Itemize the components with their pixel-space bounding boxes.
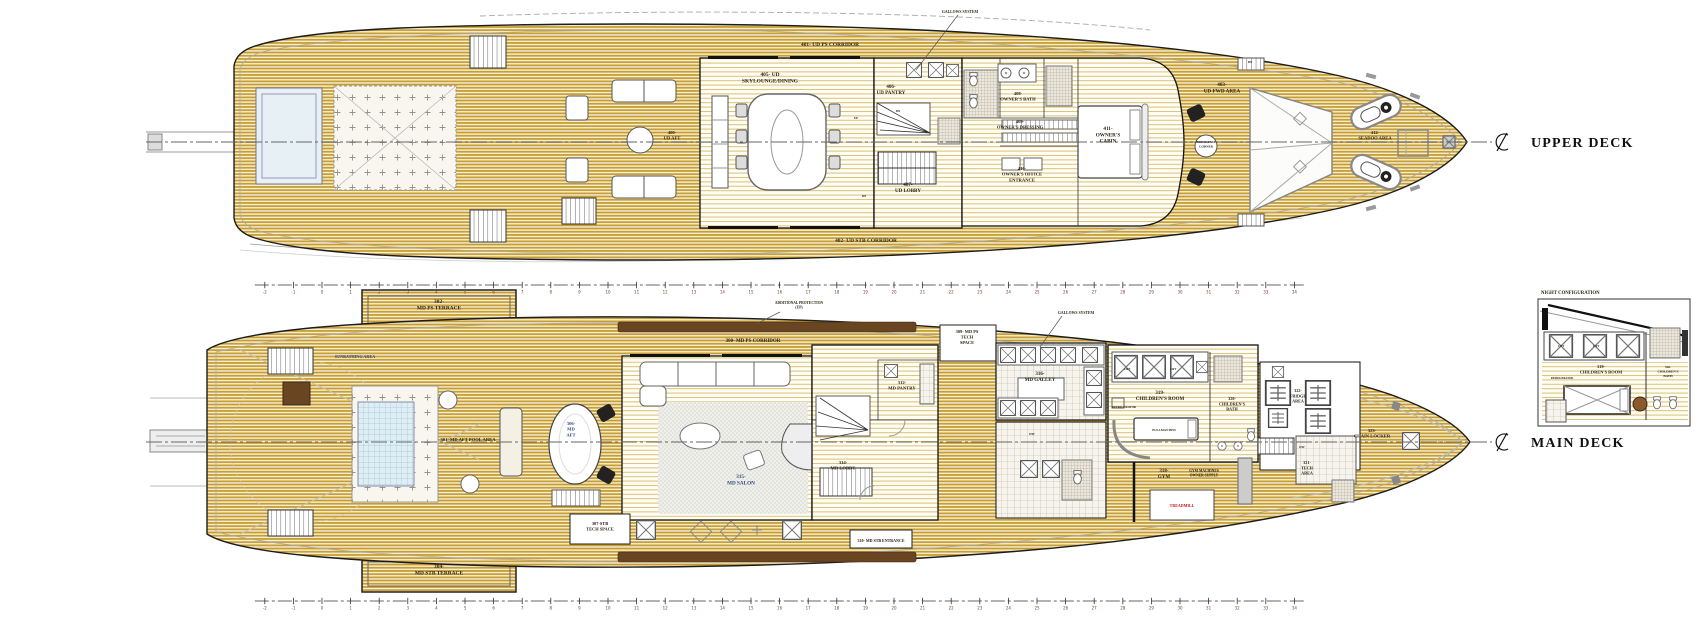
tech-area-label: TECH [1301,465,1314,470]
ruler-tick-number: 12 [663,606,669,611]
ruler-tick-number: 3 [407,290,410,295]
md-ps-tech-label: TECH [961,335,974,340]
fwd-step-stb [1238,214,1264,226]
ruler-tick-number: 0 [321,606,324,611]
ruler-tick-number: 7 [521,606,524,611]
ruler-tick-number: 21 [920,606,926,611]
childrens-toilet [1248,429,1255,441]
ruler-tick-number: 25 [1034,606,1040,611]
caprail-stb [618,552,916,562]
md-pantry-label: 312- [898,380,907,385]
chain-locker-label: CHAIN LOCKER [1354,434,1391,439]
skylounge-window3 [708,226,778,229]
fridge2 [1269,409,1288,428]
fridge1 [1266,381,1290,405]
gym-note-label: GYM MACHINES [1189,469,1218,473]
ruler-tick-number: 1 [349,290,352,295]
ruler-tick-number: 31 [1206,290,1212,295]
ud-skylounge-label: SKYLOUNGE/DINING [742,79,799,85]
ud-fwd-area-label: UD FWD AREA [1204,88,1241,94]
ruler-tick-number: 13 [691,290,697,295]
ruler-tick-number: 11 [634,290,640,295]
ruler-tick-number: 28 [1120,290,1126,295]
night-childrens-room-label: 319- [1597,364,1606,369]
childrens-bath-label: 320- [1228,396,1236,401]
md-dumbwaiter [884,364,897,377]
ruler-tick-number: 32 [1235,290,1241,295]
inset-bed [1564,386,1630,414]
childrens-shower [1214,356,1242,382]
night-childrens-bath-label: BATH [1663,374,1673,378]
centerline-symbol-upper [1496,133,1508,151]
md-stb-terrace-label: MD STB TERRACE [415,571,464,577]
fridge-area-label: 322- [1294,388,1302,393]
main-deck-plan [150,290,1470,592]
ud-skylounge-label: 405- UD [760,72,779,78]
ruler-tick-number: 0 [321,290,324,295]
childrens-room-label: 319- [1155,391,1165,396]
ruler-tick-number: 22 [949,606,955,611]
ud-lobby-label: 407- [903,183,913,188]
ruler-tick-number: 14 [720,606,726,611]
chain-locker-box [1403,433,1420,450]
ruler-tick-number: 12 [663,290,669,295]
ruler-tick-number: 21 [920,290,926,295]
passerelle [150,430,207,452]
ruler-tick-number: 19 [863,290,869,295]
centerline-symbol-main [1496,433,1508,451]
ud-skylight [256,88,322,184]
gym-label: 318- [1159,469,1169,474]
ruler-tick-number: 10 [605,606,611,611]
ud-lift-box2 [928,62,943,77]
ruler-tick-number: 15 [748,606,754,611]
ud-fan-stair [877,103,930,135]
main-deck-title: MAIN DECK [1531,436,1625,451]
stb-tech-space-label: TECH SPACE [586,527,614,532]
ruler-tick-number: 5 [464,606,467,611]
ud-aft-label: 400- [668,130,677,135]
pool-stool1 [439,391,457,409]
ruler-tick-number: 19 [863,606,869,611]
fridge-area-label: FRIDGE [1290,393,1306,398]
ruler-tick-number: 31 [1206,606,1212,611]
owners-dressing-label: 409- [1016,119,1025,124]
ruler-tick-number: 11 [634,606,640,611]
owners-cabin-label: OWNER'S [1096,132,1121,138]
ruler-tick-number: 9 [578,606,581,611]
ruler-tick-number: 26 [1063,290,1069,295]
dumbwaiter-box [946,64,958,76]
ruler-tick-number: 27 [1092,606,1098,611]
treadmill-label: TREADMILL [1170,503,1195,508]
md-aft-label: AFT [566,432,575,437]
salon-coffee-table [680,423,720,449]
ud-ps-corridor-label: 401- UD PS CORRIDOR [801,42,859,48]
inset-chair [1633,397,1647,411]
owners-bath-floor [964,70,998,118]
md-gallows-annotation: GALLOWS SYSTEM [1058,311,1095,315]
tech-area-label: AREA [1301,471,1313,476]
tech-area-label: 321- [1303,460,1311,465]
ud-lift-box1 [906,62,921,77]
ruler-tick-number: 7 [521,290,524,295]
tech-shower [1332,480,1354,502]
ruler-tick-number: 17 [806,290,812,295]
caprail-ps [618,322,916,332]
ruler-tick-number: 20 [891,606,897,611]
owners-toilet1 [970,73,978,86]
inset-title: NIGHT CONFIGURATION [1541,291,1600,296]
owners-cabin-label: 411- [1103,126,1112,132]
lift-label-1: LIFT [1124,368,1131,371]
ruler-tick-number: 1 [349,606,352,611]
ruler-tick-number: 30 [1177,290,1183,295]
upper-deck-plan [146,12,1467,262]
inset-cabinet [1682,330,1688,356]
gym-bench [1238,458,1252,504]
owners-bath-label: OWNER'S BATH [1000,97,1036,102]
md-stb-terrace-label: 304- [434,564,444,570]
ruler-tick-number: 29 [1149,290,1155,295]
ruler-tick-number: 34 [1292,606,1298,611]
salon-window1 [630,354,710,357]
pullman-bed-label: PULLMAN BED [1152,428,1176,432]
fridge4 [1306,409,1330,433]
ruler-tick-number: 34 [1292,290,1298,295]
ruler-tick-number: -2 [263,290,267,295]
ruler-tick-number: 13 [691,606,697,611]
md-lobby-label: MD LOBBY [831,466,857,471]
ruler-tick-number: 2 [378,606,381,611]
ruler-tick-number: 8 [550,606,553,611]
ruler-tick-number: 15 [748,290,754,295]
ud-ps-stairs [470,36,506,68]
ga-drawing-sheet: UPPER DECK MAIN DECK NIGHT CONFIGURATION… [0,0,1700,629]
ruler-tick-number: 28 [1120,606,1126,611]
fridge-area-label: AREA [1292,399,1304,404]
md-aft-stair-ps [268,348,313,374]
ud-gallows-annotation: GALLOWS SYSTEM [942,10,979,14]
owners-shower [1046,66,1072,106]
inset-side-table [1546,400,1566,422]
gym-label: GYM [1158,475,1171,480]
md-ps-tech-label: SPACE [960,340,974,345]
ruler-tick-number: -2 [263,606,267,611]
ruler-tick-number: 25 [1034,290,1040,295]
lower-ruler: -2-1012345678910111213141516171819202122… [255,598,1305,611]
ruler-tick-number: 33 [1263,290,1269,295]
ruler-tick-number: 22 [949,290,955,295]
ruler-tick-number: 18 [834,290,840,295]
ruler-tick-number: 30 [1177,606,1183,611]
md-pool [358,402,414,486]
childrens-wardrobes [1112,352,1208,382]
ruler-tick-number: -1 [291,606,295,611]
inset-toilet1 [1654,397,1661,409]
ruler-tick-number: 17 [806,606,812,611]
owners-office-label: OWNER'S OFFICE [1002,172,1042,177]
night-lift-label-2: LIFT [1593,345,1600,348]
ruler-tick-number: 4 [435,606,438,611]
md-salon-label: MD SALON [727,480,755,486]
skylounge-window2 [790,56,860,59]
owners-toilet2 [970,95,978,108]
ud-stb-stairs [470,210,506,242]
childrens-bath-label: CHILDREN'S [1219,401,1246,406]
inset-shower [1650,328,1680,358]
md-ps-corridor-label: 300- MD PS CORRIDOR [726,339,781,344]
dw-stair [1258,438,1294,454]
crew-box1 [1021,461,1038,478]
stb-tech-space-label: 307-STB [592,521,608,526]
childrens-sink2 [1234,442,1242,450]
inset-toilet2 [1670,397,1677,409]
owners-sink2 [1019,68,1029,78]
breakfast-label: CORNER [1199,144,1214,148]
skylounge-window1 [708,56,778,59]
md-galley-label: 316- [1035,372,1045,377]
stair-up-label: UP [854,116,858,120]
ruler-tick-number: 6 [492,606,495,611]
md-protection-annotation: ADDITIONAL PROTECTION [775,301,824,305]
owners-office-label: 410- [1018,166,1027,171]
md-aft-label: MD [567,427,575,432]
md-stb-entrance-label: 310- MD STB ENTRANCE [857,538,904,543]
ruler-tick-number: 33 [1263,606,1269,611]
ruler-tick-number: 24 [1006,290,1012,295]
night-configuration-inset [1538,299,1690,426]
ruler-tick-number: 29 [1149,606,1155,611]
md-ps-tech-label: 309- MD PS [956,329,979,334]
ruler-tick-number: 16 [777,606,783,611]
owners-dressing-label: OWNER'S DRESSING [997,125,1044,130]
childrens-sink1 [1218,442,1226,450]
md-pantry-label: MD PANTRY [888,386,916,391]
ruler-tick-number: 10 [605,290,611,295]
refrigerator-label: REFRIGERATOR [1112,405,1137,409]
ruler-tick-number: 3 [407,606,410,611]
ud-fwd-area-label: 403- [1217,82,1227,88]
childrens-bath-label: BATH [1226,407,1238,412]
md-salon-label: 315- [736,474,746,480]
md-ps-terrace-label: 302- [434,299,444,305]
md-ps-terrace-label: MD PS TERRACE [417,306,462,312]
md-pantry-counter [920,364,934,404]
pool-stool2 [461,475,479,493]
md-fan-stair [816,396,870,440]
ruler-tick-number: -1 [291,290,295,295]
ruler-tick-number: 26 [1063,606,1069,611]
ruler-tick-number: 23 [977,606,983,611]
night-childrens-room-label: CHILDREN'S ROOM [1580,370,1623,375]
ud-aft-label: UD AFT [664,136,681,141]
seadoo-label: 412- [1371,130,1380,135]
night-refrigerator-label: REFRIGERATOR [1551,377,1575,380]
stair-dn-label-3: DN [1248,60,1253,64]
ud-lobby-label: UD LOBBY [895,189,921,194]
day-head-toilet [1074,471,1082,484]
seadoo-label: SEADOO AREA [1358,136,1392,141]
ud-pantry-label: 406- [886,85,896,90]
ud-pantry-label: UD PANTRY [877,91,906,96]
crew-box2 [1043,461,1060,478]
owners-sink1 [1001,68,1011,78]
ruler-tick-number: 9 [578,290,581,295]
md-lobby-label: 314- [839,460,848,465]
ruler-tick-number: 24 [1006,606,1012,611]
md-aft-label: 306- [567,421,576,426]
childrens-room-label: CHILDREN'S ROOM [1136,397,1185,402]
stair-dn-label-2: DN [862,194,867,198]
md-protection-annotation: (UP) [795,306,803,310]
md-straight-stair [820,468,872,496]
ruler-tick-number: 32 [1235,606,1241,611]
night-lift-label-1: LIFT [1558,345,1565,348]
sunbathing-label: SUNBATHING AREA [335,354,376,359]
fwd-cabinet [1272,366,1283,377]
chain-locker-label: 323- [1368,428,1377,433]
ud-aft-stairs [562,198,596,224]
ruler-tick-number: 14 [720,290,726,295]
stair-dn-label-1: DN [896,109,901,113]
ruler-tick-number: 23 [977,290,983,295]
md-aft-bar [283,382,310,405]
ruler-tick-number: 4 [435,290,438,295]
md-aft-pool-label: 301- MD AFT POOL AREA [440,437,496,442]
ruler-tick-number: 18 [834,606,840,611]
ruler-tick-number: 8 [550,290,553,295]
yacht-ga-drawing: UPPER DECK MAIN DECK NIGHT CONFIGURATION… [0,0,1700,629]
fridge3 [1306,381,1330,405]
skylounge-window4 [790,226,860,229]
owners-bath-label: 408- [1014,91,1023,96]
lift-label-2: LIFT [1170,368,1177,371]
salon-window2 [722,354,802,357]
owners-cabin-label: CABIN [1100,139,1117,145]
stair-dw-label-2: DW [1029,432,1035,436]
ruler-tick-number: 5 [464,290,467,295]
ruler-tick-number: 20 [891,290,897,295]
ud-wc-floor [938,118,960,144]
night-childrens-bath-label: 320- [1665,365,1671,369]
ruler-tick-number: 16 [777,290,783,295]
upper-deck-title: UPPER DECK [1531,136,1634,151]
ruler-tick-number: 27 [1092,290,1098,295]
gym-note-label: OWNER SUPPLY [1190,474,1219,478]
owners-office-label: ENTRANCE [1009,177,1035,182]
stair-dw-label-1: DW [1299,445,1305,449]
inset-post [1542,308,1548,330]
ruler-tick-number: 2 [378,290,381,295]
ud-stb-corridor-label: 402- UD STB CORRIDOR [835,238,897,244]
office-desk2 [1024,158,1042,170]
md-galley-label: MD GALLEY [1025,378,1056,383]
night-childrens-bath-label: CHILDREN'S [1657,370,1678,374]
md-aft-stair-stb [268,510,313,536]
